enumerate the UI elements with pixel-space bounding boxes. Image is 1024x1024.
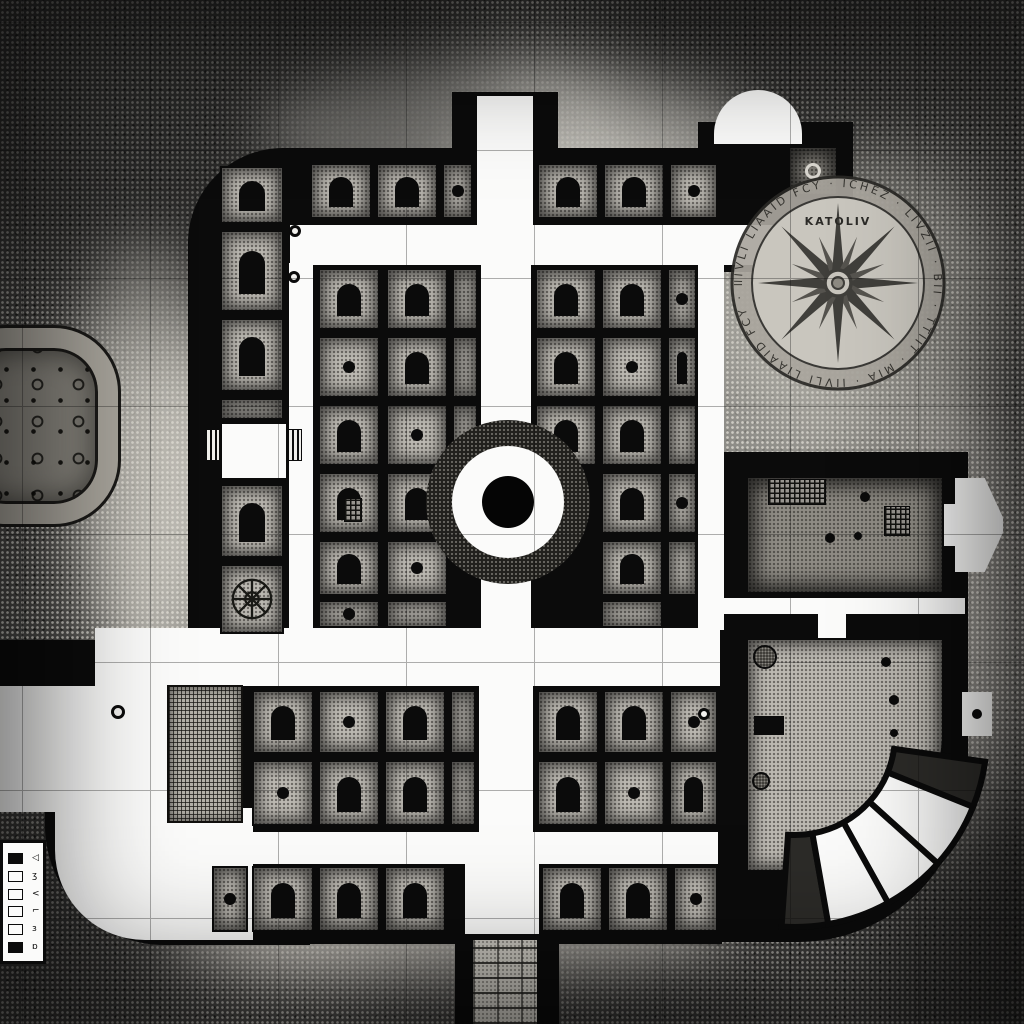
arch-door-icon — [554, 284, 578, 316]
arch-door-icon — [622, 706, 646, 740]
dot-marker-icon — [890, 729, 898, 737]
door-dot-icon — [343, 716, 355, 728]
grate-icon — [768, 479, 826, 505]
legend-row: < — [8, 886, 39, 903]
brick-passage — [473, 940, 537, 1024]
room-cell — [601, 268, 663, 330]
pit-platform-icon — [826, 864, 870, 916]
dungeon-structures: IIVLI LIAAID FCY · ICHEZ · LIVZII · BII … — [0, 0, 1024, 1024]
legend-label: ɜ — [32, 925, 37, 934]
room-cell — [667, 472, 697, 534]
arch-door-icon — [337, 284, 361, 316]
floor-area — [698, 263, 724, 630]
room-cell — [318, 690, 380, 754]
door-dot-icon — [411, 429, 423, 441]
room-cell — [450, 760, 476, 826]
door-dot-icon — [626, 361, 638, 373]
legend-swatch-icon — [8, 942, 23, 953]
dungeon-map-canvas: IIVLI LIAAID FCY · ICHEZ · LIVZII · BII … — [0, 0, 1024, 1024]
room-cell — [673, 866, 718, 932]
floor-area — [465, 862, 539, 934]
arch-door-icon — [337, 883, 361, 918]
room-cell — [537, 760, 599, 826]
legend-swatch-icon — [8, 871, 23, 882]
floor-area — [481, 578, 531, 630]
door-dot-icon — [224, 893, 236, 905]
dot-marker-icon — [860, 492, 870, 502]
legend-row: ◁ — [8, 850, 39, 867]
room-cell — [535, 268, 597, 330]
grotto-pool — [0, 328, 118, 524]
ring-glyph-icon — [289, 225, 301, 237]
room-cell — [386, 268, 448, 330]
rotunda-pit-icon — [482, 476, 534, 528]
arch-door-icon — [271, 706, 295, 740]
wall-slab — [0, 640, 100, 688]
door-dot-icon — [452, 185, 464, 197]
room-cell — [212, 866, 248, 932]
arch-door-icon — [337, 420, 361, 452]
door-dot-icon — [343, 608, 355, 620]
room-cell — [541, 866, 603, 932]
room-cell — [535, 336, 597, 398]
legend-row: ɜ — [8, 921, 39, 938]
arch-door-icon — [337, 554, 361, 583]
door-dot-icon — [690, 893, 702, 905]
room-cell — [220, 230, 284, 312]
door-dot-icon — [411, 562, 423, 574]
arch-door-icon — [620, 488, 644, 520]
dot-marker-icon — [972, 709, 982, 719]
room-cell — [220, 564, 284, 634]
room-cell — [452, 336, 478, 398]
door-dot-icon — [676, 293, 688, 305]
room-cell — [252, 690, 314, 754]
legend-label: < — [32, 890, 40, 899]
arch-door-icon — [677, 352, 688, 384]
tiled-floor-area — [167, 685, 243, 823]
door-dot-icon — [277, 787, 289, 799]
door-dot-icon — [628, 787, 640, 799]
arch-door-icon — [239, 503, 264, 542]
floor-area — [170, 832, 718, 864]
room-cell — [603, 760, 665, 826]
floor-area — [955, 478, 1003, 572]
legend-swatch-icon — [8, 853, 23, 864]
legend-label: ʒ — [32, 872, 37, 881]
arch-door-icon — [239, 251, 264, 295]
room-cell — [669, 163, 718, 219]
door-dot-icon — [688, 716, 700, 728]
room-cell — [386, 540, 448, 596]
arch-door-icon — [329, 177, 353, 206]
room-cell — [537, 163, 599, 219]
dot-marker-icon — [854, 532, 862, 540]
arch-door-icon — [405, 352, 429, 384]
legend-row: ɒ — [8, 939, 39, 956]
room-cell — [220, 318, 284, 392]
dot-marker-icon — [825, 533, 835, 543]
arch-door-icon — [395, 177, 419, 206]
room-cell — [667, 336, 697, 398]
room-cell — [220, 484, 284, 558]
door-dot-icon — [688, 185, 700, 197]
room-cell — [601, 404, 663, 466]
room-cell — [376, 163, 438, 219]
room-cell — [452, 268, 478, 330]
room-cell — [601, 540, 663, 596]
room-cell — [220, 166, 284, 224]
grate-icon — [344, 498, 362, 522]
table-block — [754, 716, 784, 735]
legend-row: ʒ — [8, 868, 39, 885]
legend-label: ɒ — [32, 943, 38, 952]
svg-text:KATOLIV: KATOLIV — [805, 215, 872, 228]
arch-door-icon — [405, 284, 429, 316]
wheel-emblem-icon — [222, 566, 282, 632]
room-cell — [386, 336, 448, 398]
room-cell — [603, 163, 665, 219]
arch-door-icon — [684, 777, 703, 812]
room-cell — [667, 540, 697, 596]
room-cell — [220, 398, 284, 420]
floor-area — [818, 608, 846, 642]
floor-area — [0, 686, 170, 812]
dot-marker-icon — [881, 657, 891, 667]
arch-door-icon — [620, 554, 644, 583]
arch-door-icon — [239, 337, 264, 376]
room-cell — [252, 866, 314, 932]
arch-door-icon — [560, 883, 584, 918]
floor-area — [222, 424, 286, 478]
well-icon — [752, 772, 770, 790]
room-cell — [537, 690, 599, 754]
room-cell — [384, 760, 446, 826]
room-cell — [450, 690, 476, 754]
room-cell — [318, 760, 380, 826]
arch-door-icon — [403, 883, 427, 918]
arch-door-icon — [554, 352, 578, 384]
room-cell — [386, 600, 448, 628]
map-legend: ◁ʒ<⌐ɜɒ — [0, 840, 46, 964]
room-cell — [669, 760, 718, 826]
room-cell — [667, 268, 697, 330]
room-cell — [318, 268, 380, 330]
door-hatch-icon — [204, 429, 220, 461]
legend-label: ◁ — [32, 854, 39, 863]
arch-door-icon — [403, 706, 427, 740]
floor-area — [95, 628, 720, 686]
ring-glyph-icon — [288, 271, 300, 283]
room-cell — [667, 404, 697, 466]
door-dot-icon — [343, 361, 355, 373]
legend-swatch-icon — [8, 906, 23, 917]
room-cell — [318, 866, 380, 932]
floor-area — [479, 686, 533, 832]
room-cell — [601, 472, 663, 534]
compass-rose-icon: IIVLI LIAAID FCY · ICHEZ · LIVZII · BII … — [724, 169, 952, 397]
room-cell — [318, 336, 380, 398]
arch-door-icon — [403, 777, 427, 812]
ring-glyph-icon — [111, 705, 125, 719]
legend-row: ⌐ — [8, 903, 39, 920]
room-cell — [442, 163, 473, 219]
room-cell — [607, 866, 669, 932]
room-cell — [252, 760, 314, 826]
arch-door-icon — [622, 177, 646, 206]
arch-door-icon — [337, 777, 361, 812]
room-cell — [603, 690, 665, 754]
arch-door-icon — [556, 777, 580, 812]
room-cell — [601, 600, 663, 628]
room-cell — [384, 690, 446, 754]
arch-door-icon — [556, 177, 580, 206]
arch-door-icon — [271, 883, 295, 918]
room-cell — [669, 690, 718, 754]
door-dot-icon — [676, 497, 688, 509]
arch-door-icon — [556, 706, 580, 740]
floor-area — [714, 90, 802, 144]
arch-door-icon — [626, 883, 650, 918]
room-cell — [318, 540, 380, 596]
grate-icon — [884, 506, 910, 536]
arch-door-icon — [620, 420, 644, 452]
room-cell — [318, 600, 380, 628]
room-cell — [310, 163, 372, 219]
door-hatch-icon — [286, 429, 302, 461]
room-cell — [384, 866, 446, 932]
room-cell — [601, 336, 663, 398]
floor-area — [481, 186, 531, 432]
legend-swatch-icon — [8, 889, 23, 900]
legend-label: ⌐ — [32, 907, 40, 916]
well-icon — [753, 645, 777, 669]
ring-glyph-icon — [698, 708, 710, 720]
room-cell — [318, 404, 380, 466]
arch-door-icon — [239, 181, 264, 211]
dot-marker-icon — [889, 695, 899, 705]
arch-door-icon — [620, 284, 644, 316]
legend-swatch-icon — [8, 924, 23, 935]
